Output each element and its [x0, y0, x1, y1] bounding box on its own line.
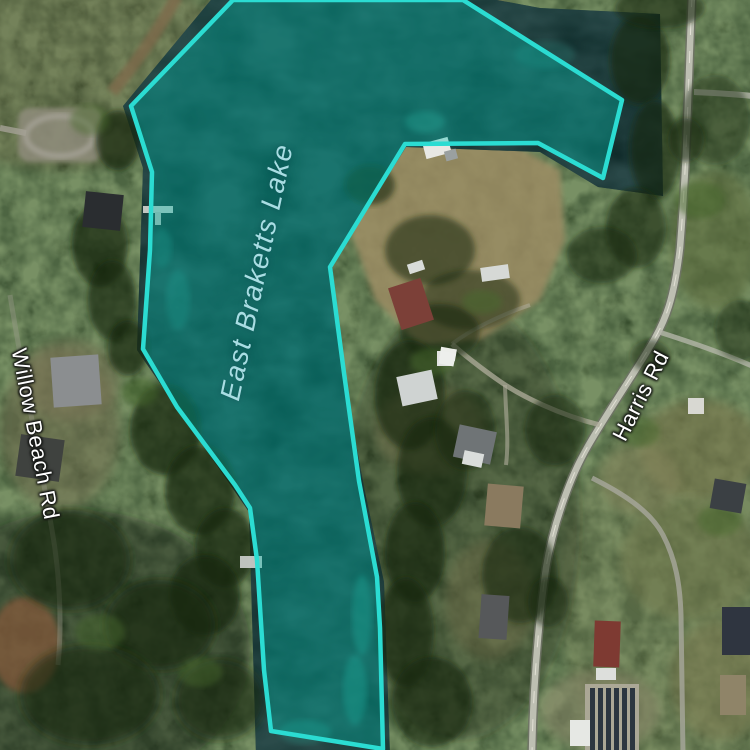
satellite-map-viewport[interactable]: East Braketts Lake Willow Beach Rd Harri… — [0, 0, 750, 750]
satellite-imagery — [0, 0, 750, 750]
